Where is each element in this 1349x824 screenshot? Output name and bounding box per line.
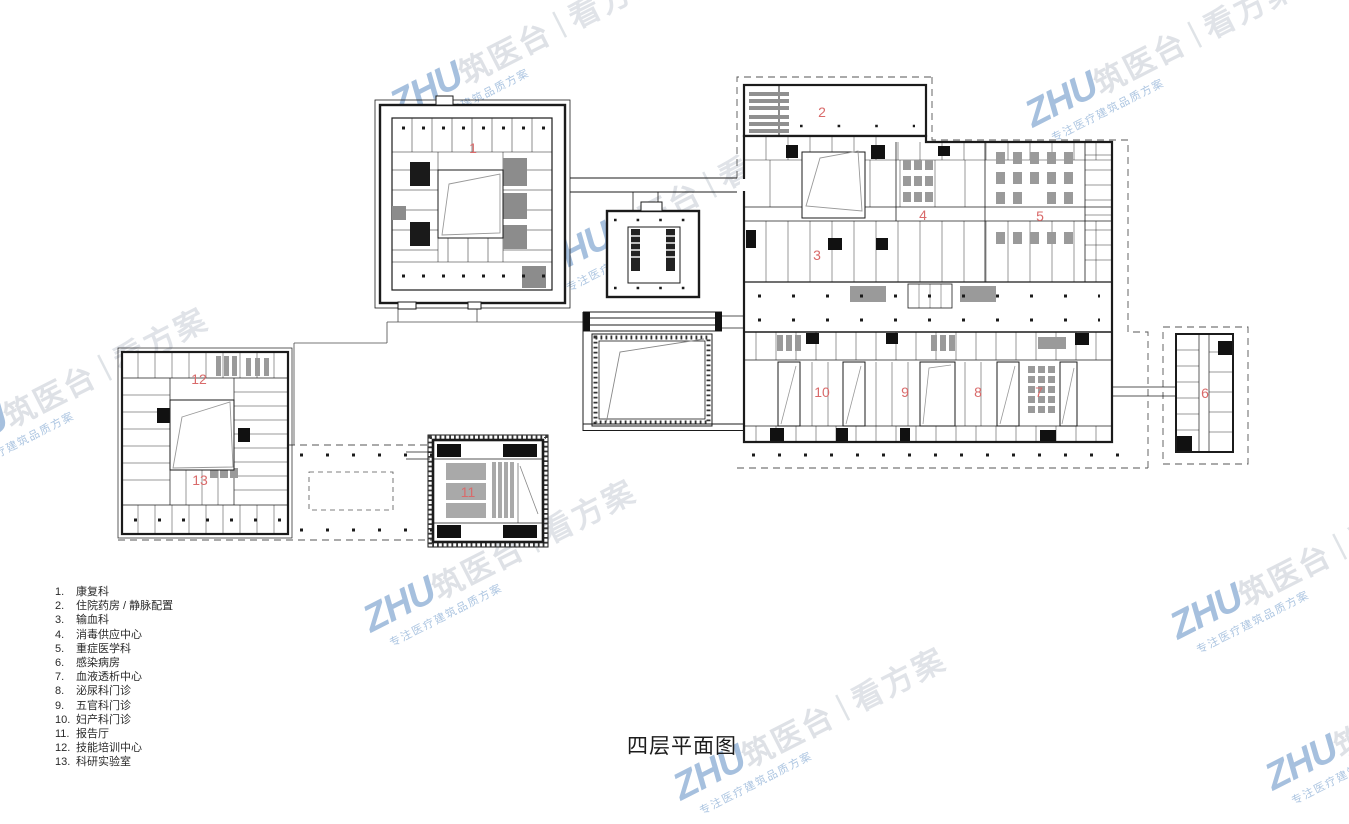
plan-label-2: 2 (818, 105, 826, 119)
legend-item: 13.科研实验室 (55, 755, 173, 769)
plan-label-8: 8 (974, 385, 982, 399)
legend-item-label: 感染病房 (76, 656, 120, 670)
legend-item: 4.消毒供应中心 (55, 628, 173, 642)
page: ZHU筑医台专注医疗建筑品质方案|看方案ZHU筑医台专注医疗建筑品质方案|看方案… (0, 0, 1349, 824)
legend-item-label: 泌尿科门诊 (76, 684, 131, 698)
plan-title: 四层平面图 (627, 730, 737, 760)
legend-item: 3.输血科 (55, 613, 173, 627)
legend-item-label: 技能培训中心 (76, 741, 142, 755)
plan-label-9: 9 (901, 385, 909, 399)
plan-label-1: 1 (469, 141, 477, 155)
legend-item-label: 妇产科门诊 (76, 713, 131, 727)
legend-item-label: 住院药房 / 静脉配置 (76, 599, 173, 613)
podium-roof-outline (294, 303, 583, 445)
block-1-rehab (375, 96, 570, 309)
plan-label-6: 6 (1201, 386, 1209, 400)
plan-label-4: 4 (919, 208, 927, 222)
legend-item: 8.泌尿科门诊 (55, 684, 173, 698)
legend-item-label: 血液透析中心 (76, 670, 142, 684)
legend-item: 7.血液透析中心 (55, 670, 173, 684)
legend-item: 9.五官科门诊 (55, 699, 173, 713)
plan-label-12: 12 (191, 372, 207, 386)
legend: 1.康复科2.住院药房 / 静脉配置3.输血科4.消毒供应中心5.重症医学科6.… (55, 585, 173, 769)
legend-item-label: 输血科 (76, 613, 109, 627)
legend-item-number: 3. (55, 613, 76, 627)
plan-label-3: 3 (813, 248, 821, 262)
legend-item: 10.妇产科门诊 (55, 713, 173, 727)
central-courtyard (583, 312, 744, 431)
legend-item: 12.技能培训中心 (55, 741, 173, 755)
block-2-pharmacy (744, 85, 926, 136)
legend-item-label: 报告厅 (76, 727, 109, 741)
legend-item: 5.重症医学科 (55, 642, 173, 656)
plan-label-10: 10 (814, 385, 830, 399)
legend-item-number: 1. (55, 585, 76, 599)
plan-label-7: 7 (1035, 385, 1043, 399)
legend-item: 1.康复科 (55, 585, 173, 599)
legend-item-label: 五官科门诊 (76, 699, 131, 713)
legend-item: 2.住院药房 / 静脉配置 (55, 599, 173, 613)
legend-item-number: 7. (55, 670, 76, 684)
legend-item-number: 10. (55, 713, 76, 727)
legend-item-label: 科研实验室 (76, 755, 131, 769)
legend-item: 6.感染病房 (55, 656, 173, 670)
legend-item-number: 9. (55, 699, 76, 713)
legend-item-number: 8. (55, 684, 76, 698)
block-11-auditorium (406, 435, 548, 547)
legend-item-number: 6. (55, 656, 76, 670)
legend-item-label: 消毒供应中心 (76, 628, 142, 642)
legend-item-number: 2. (55, 599, 76, 613)
block-6-infection (1112, 334, 1233, 452)
plan-label-13: 13 (192, 473, 208, 487)
legend-item-number: 5. (55, 642, 76, 656)
floor-plan (0, 0, 1349, 824)
legend-item-label: 重症医学科 (76, 642, 131, 656)
legend-item-label: 康复科 (76, 585, 109, 599)
plan-label-5: 5 (1036, 209, 1044, 223)
legend-item-number: 11. (55, 727, 76, 741)
legend-item-number: 13. (55, 755, 76, 769)
central-pavilion (607, 202, 699, 297)
legend-item-number: 4. (55, 628, 76, 642)
legend-item-number: 12. (55, 741, 76, 755)
plan-label-11: 11 (461, 485, 476, 499)
legend-item: 11.报告厅 (55, 727, 173, 741)
